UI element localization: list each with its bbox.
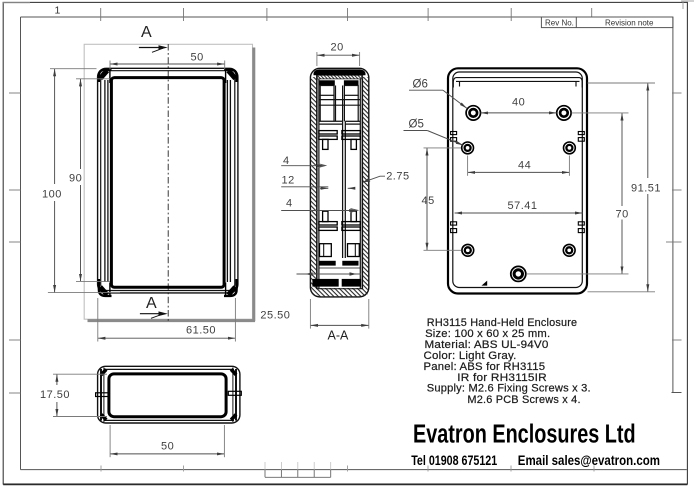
svg-text:1: 1 [55,5,61,17]
svg-text:4: 4 [286,198,293,210]
svg-text:91.51: 91.51 [631,183,661,195]
svg-text:44: 44 [518,160,531,172]
svg-text:Supply: M2.6 Fixing Screws x 3: Supply: M2.6 Fixing Screws x 3. [427,383,591,395]
svg-text:12: 12 [282,175,295,187]
svg-text:Ø5: Ø5 [409,119,424,131]
svg-text:17.50: 17.50 [40,389,70,401]
svg-text:45: 45 [422,195,435,207]
svg-text:4: 4 [283,155,290,167]
svg-text:50: 50 [161,441,174,453]
svg-text:A: A [146,295,157,312]
svg-text:100: 100 [42,189,62,201]
svg-text:25.50: 25.50 [260,310,290,322]
svg-text:2.75: 2.75 [386,171,409,183]
svg-text:40: 40 [512,97,525,109]
svg-text:Tel 01908 675121: Tel 01908 675121 [411,452,497,468]
svg-text:Email sales@evatron.com: Email sales@evatron.com [518,452,660,468]
svg-text:Evatron Enclosures Ltd: Evatron Enclosures Ltd [413,421,636,449]
svg-text:Rev No.: Rev No. [545,18,574,27]
svg-text:20: 20 [331,42,344,54]
svg-text:A-A: A-A [328,329,350,343]
svg-text:M2.6 PCB Screws x 4.: M2.6 PCB Screws x 4. [467,394,580,406]
svg-text:Color: Light Gray.: Color: Light Gray. [424,350,517,362]
svg-text:61.50: 61.50 [186,325,216,337]
svg-text:50: 50 [191,52,204,64]
svg-text:Revision note: Revision note [605,18,654,27]
svg-text:A: A [141,24,152,41]
svg-text:57.41: 57.41 [508,200,538,212]
svg-text:70: 70 [616,209,629,221]
svg-text:Ø6: Ø6 [413,79,428,91]
svg-text:90: 90 [69,173,82,185]
